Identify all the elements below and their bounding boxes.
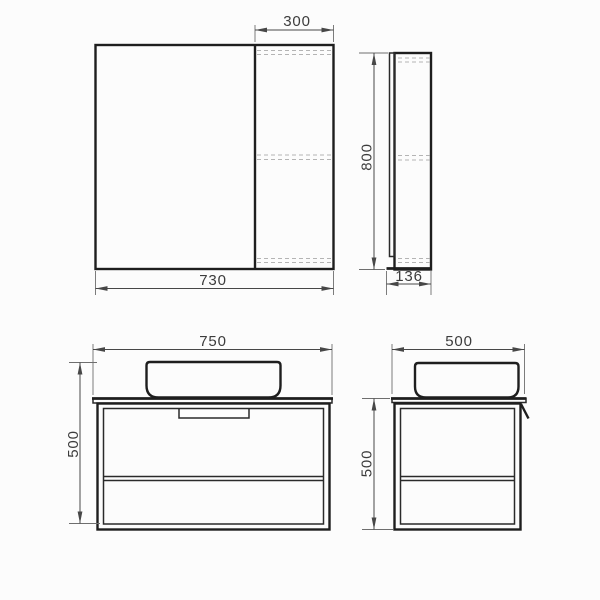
mirror-cabinet-body-outline — [96, 45, 334, 269]
dimension-label-vanity-width: 750 — [199, 333, 226, 350]
dimension-label-mirror-depth: 136 — [395, 268, 422, 285]
dimension-label-vanity-height-front: 500 — [65, 430, 82, 457]
mirror-side-body-outline — [395, 53, 432, 270]
vanity-side-view: 500 500 — [359, 333, 529, 530]
drawer-handle-recess — [179, 409, 249, 419]
vanity-cabinet-outline-front — [98, 404, 330, 530]
dimension-vanity-width: 750 — [93, 333, 332, 395]
dimension-label-mirror-door-width: 300 — [283, 13, 310, 30]
mirror-shelf-hidden-lines — [257, 51, 332, 263]
vanity-front-view: 750 500 — [65, 333, 333, 530]
dimension-label-mirror-width: 730 — [199, 272, 226, 289]
mirror-cabinet-front-view: 300 730 — [96, 13, 334, 295]
dimension-label-vanity-height-side: 500 — [359, 450, 376, 477]
countertop-basin-side — [415, 363, 519, 398]
dimension-label-vanity-depth: 500 — [445, 333, 472, 350]
furniture-dimension-drawing: 300 730 800 — [0, 0, 600, 600]
dimension-mirror-width: 730 — [96, 271, 334, 295]
dimension-mirror-height: 800 — [359, 53, 389, 270]
mirror-side-hidden-lines — [398, 58, 430, 263]
dimension-vanity-height-front: 500 — [65, 363, 100, 524]
vanity-cabinet-inner-frame-side — [401, 409, 515, 525]
dimension-label-mirror-height: 800 — [359, 143, 376, 170]
dimension-mirror-door-width: 300 — [255, 13, 334, 42]
wall-mount-bracket-mark — [521, 404, 529, 419]
dimension-mirror-depth: 136 — [387, 268, 432, 295]
dimension-vanity-height-side: 500 — [359, 399, 394, 530]
mirror-cabinet-side-view: 800 136 — [359, 53, 432, 295]
countertop-basin-front — [147, 362, 281, 398]
vanity-cabinet-outline-side — [395, 404, 521, 530]
mirror-door-panel-edge — [390, 53, 395, 257]
vanity-cabinet-inner-frame-front — [104, 409, 324, 525]
